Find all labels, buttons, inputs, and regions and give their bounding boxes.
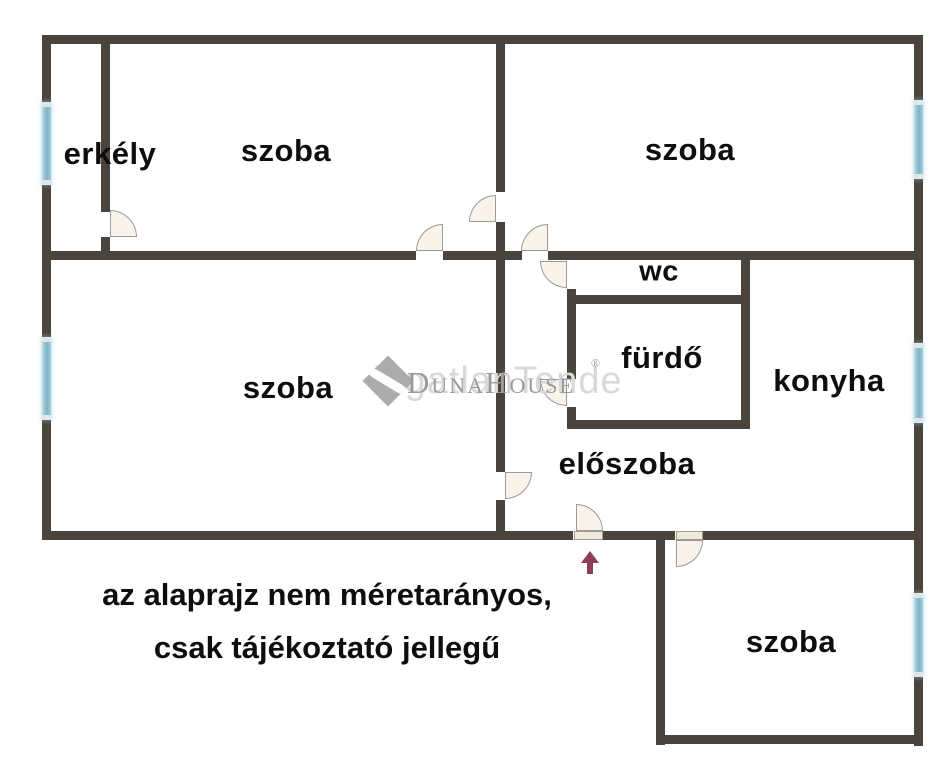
wall-segment — [703, 531, 923, 540]
wall-segment — [741, 260, 750, 429]
window-top-right-room-window — [914, 100, 923, 179]
room-label-furdo: fürdő — [621, 340, 703, 376]
window-balcony-window — [42, 102, 51, 185]
door-swing-balcony-door — [110, 210, 137, 237]
wall-segment — [567, 295, 750, 304]
wall-segment — [656, 531, 665, 745]
door-swing-left-room-door — [505, 472, 532, 499]
room-label-erkely: erkély — [64, 136, 157, 172]
bottom-room-threshold — [676, 531, 703, 540]
wall-segment — [101, 237, 110, 251]
disclaimer-text: az alaprajz nem méretarányos, csak tájék… — [102, 568, 552, 674]
room-label-szoba-bottom-left: szoba — [243, 370, 333, 406]
door-swing-top-right-room-door — [521, 224, 548, 251]
room-label-szoba-top-right: szoba — [645, 132, 735, 168]
door-swing-entrance-door — [576, 504, 603, 531]
wall-segment — [443, 251, 522, 260]
window-bottom-room-window — [914, 593, 923, 677]
wall-segment — [496, 222, 505, 472]
disclaimer-line-2: csak tájékoztató jellegű — [102, 621, 552, 674]
arrow-head — [581, 551, 599, 563]
wall-segment — [496, 500, 505, 531]
door-swing-wc-door — [540, 261, 567, 288]
room-label-eloszoba: előszoba — [559, 446, 696, 482]
wall-segment — [548, 251, 923, 260]
entrance-threshold — [574, 531, 603, 540]
wall-segment — [42, 35, 923, 44]
door-swing-bottom-room-door — [676, 540, 703, 567]
room-label-szoba-top-left: szoba — [241, 133, 331, 169]
window-left-room-window — [42, 337, 51, 420]
door-swing-room-to-room-door — [469, 195, 496, 222]
wall-segment — [101, 44, 110, 212]
registered-mark: ® — [591, 356, 600, 371]
floorplan: ingatlanTende DunaHouse ® az alaprajz ne… — [0, 0, 951, 768]
wall-segment — [567, 420, 750, 429]
door-swing-top-left-room-door — [416, 224, 443, 251]
room-label-wc: wc — [639, 256, 679, 289]
wall-segment — [496, 44, 505, 192]
wall-segment — [42, 251, 416, 260]
window-kitchen-window — [914, 343, 923, 423]
disclaimer-line-1: az alaprajz nem méretarányos, — [102, 568, 552, 621]
watermark-text: DunaHouse — [407, 365, 575, 401]
wall-segment — [42, 531, 573, 540]
wall-segment — [656, 735, 923, 744]
room-label-szoba-bottom-right: szoba — [746, 624, 836, 660]
room-label-konyha: konyha — [773, 363, 885, 399]
arrow-shaft — [587, 563, 593, 574]
entrance-arrow-icon — [581, 551, 599, 575]
